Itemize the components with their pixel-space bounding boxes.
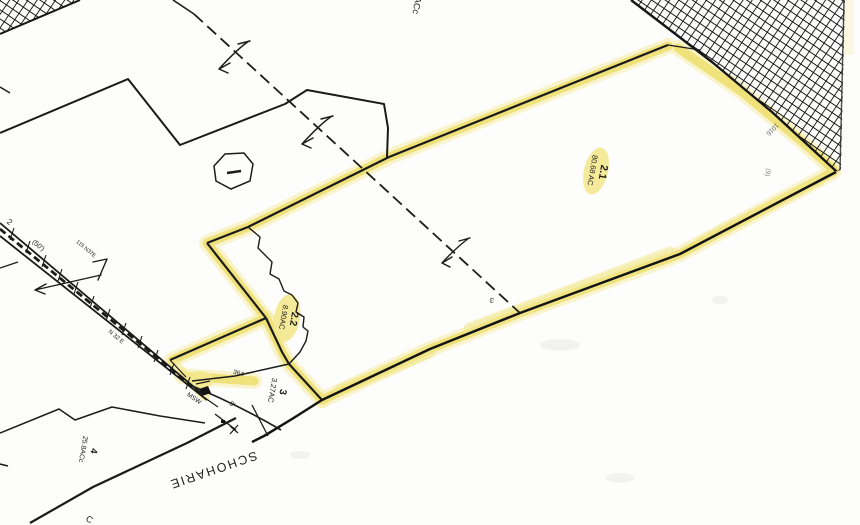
svg-text:(9): (9)	[763, 168, 771, 177]
